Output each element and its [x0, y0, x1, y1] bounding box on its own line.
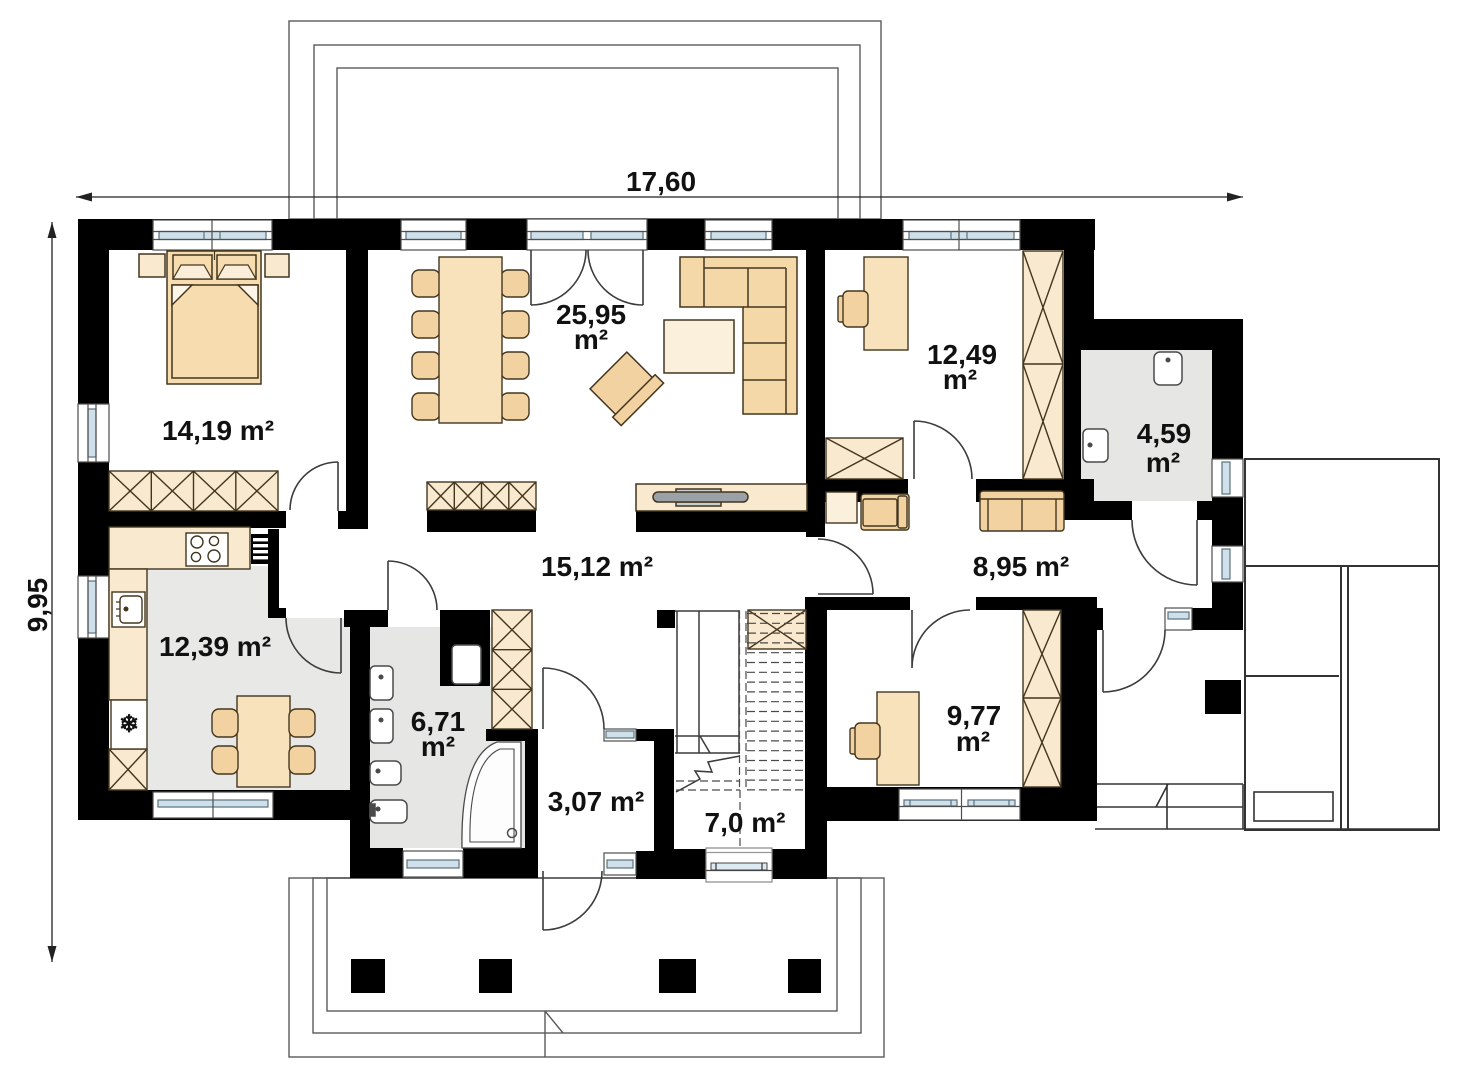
svg-text:14,19 m²: 14,19 m²: [162, 415, 274, 446]
svg-text:❄: ❄: [119, 711, 139, 738]
svg-text:8,95 m²: 8,95 m²: [973, 551, 1070, 582]
svg-text:4,59: 4,59: [1137, 418, 1192, 449]
svg-text:9,95: 9,95: [22, 578, 53, 633]
svg-text:m²: m²: [421, 731, 455, 762]
svg-text:17,60: 17,60: [626, 166, 696, 197]
svg-text:m²: m²: [943, 364, 977, 395]
svg-text:7,0 m²: 7,0 m²: [705, 807, 786, 838]
svg-text:m²: m²: [1146, 447, 1180, 478]
svg-text:15,12 m²: 15,12 m²: [541, 551, 653, 582]
svg-text:12,39 m²: 12,39 m²: [159, 631, 271, 662]
svg-text:3,07 m²: 3,07 m²: [548, 786, 645, 817]
svg-text:m²: m²: [574, 324, 608, 355]
svg-text:m²: m²: [956, 726, 990, 757]
